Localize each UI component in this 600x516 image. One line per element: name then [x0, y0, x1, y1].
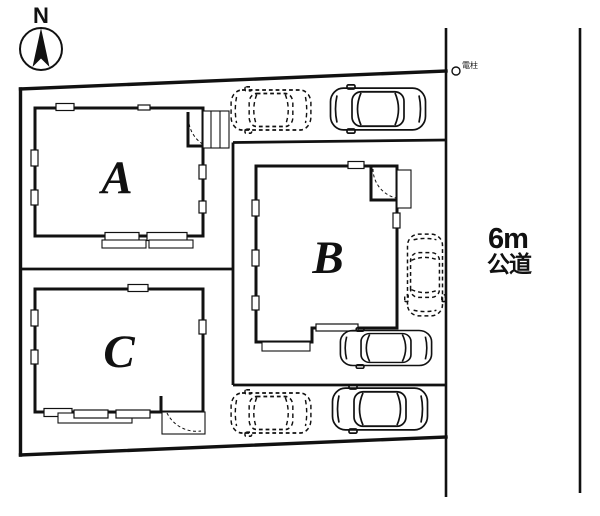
road: 6m 公道	[446, 28, 580, 497]
north-label: N	[33, 3, 49, 28]
parking-space-dashed-car-icon	[405, 234, 446, 316]
road-type-label: 公道	[487, 251, 532, 277]
door-arc	[189, 113, 203, 144]
parking-space-b	[405, 234, 446, 316]
site-plan-canvas: N 6m 公道 電柱	[0, 0, 600, 516]
parking-area-top	[231, 85, 425, 133]
car-icon	[333, 385, 428, 433]
north-compass-icon: N	[20, 3, 62, 70]
entrance-porch	[203, 111, 229, 148]
site-plan-drawing: N 6m 公道 電柱	[0, 0, 600, 516]
building-c-label: C	[103, 326, 135, 378]
building-b-label: B	[311, 232, 343, 284]
parking-space-dashed-car-icon	[231, 390, 311, 436]
building-b: B	[252, 162, 411, 352]
entrance-porch	[397, 170, 411, 208]
building-a-label: A	[98, 152, 132, 204]
parking-area-bottom	[231, 385, 427, 436]
lot-lines	[21, 140, 447, 385]
building-c: C	[31, 285, 206, 435]
building-a: A	[31, 104, 229, 249]
parking-space-dashed-car-icon	[231, 87, 311, 133]
utility-pole-icon: 電柱	[452, 60, 478, 75]
car-icon	[331, 85, 426, 133]
door-arc	[373, 169, 396, 198]
utility-pole-label: 電柱	[462, 60, 478, 70]
compass-needle	[33, 28, 50, 67]
car-icon	[340, 328, 431, 369]
